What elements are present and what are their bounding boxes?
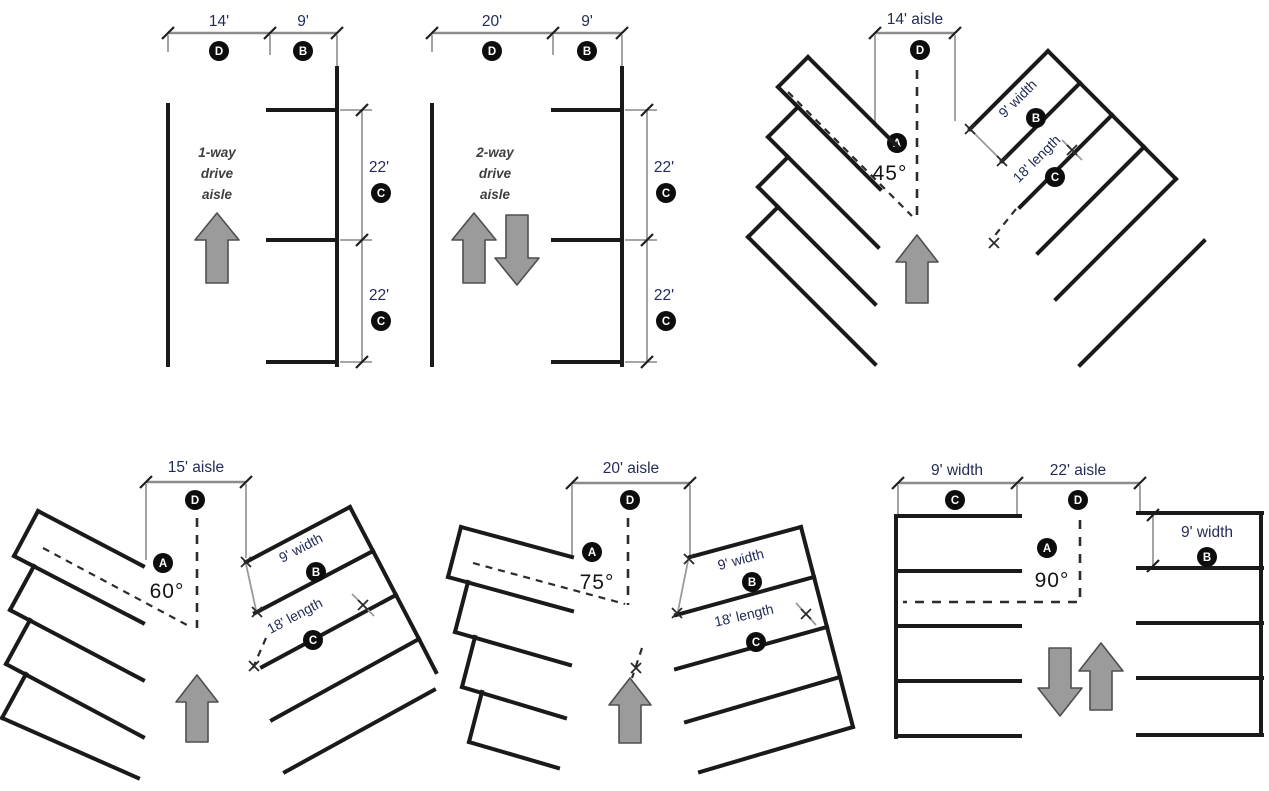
- badge-aisle: D: [910, 40, 930, 60]
- svg-text:B: B: [299, 46, 307, 58]
- svg-text:C: C: [309, 635, 317, 647]
- badge-stall-length-bottom: C: [656, 311, 676, 331]
- badge-stall-length-top: C: [656, 183, 676, 203]
- svg-text:aisle: aisle: [202, 187, 233, 202]
- badge-stall-width: B: [577, 41, 597, 61]
- svg-text:2-way: 2-way: [475, 145, 515, 160]
- badge-aisle: D: [185, 490, 205, 510]
- svg-text:D: D: [1074, 495, 1082, 507]
- svg-text:B: B: [312, 567, 320, 579]
- right-stall-rows: [246, 507, 436, 772]
- svg-text:B: B: [1032, 113, 1040, 125]
- stall-width-dimension: 9': [581, 13, 593, 30]
- svg-text:D: D: [916, 45, 924, 57]
- left-stall-rows: [2, 511, 143, 778]
- svg-text:drive: drive: [201, 166, 234, 181]
- angle-value: 90°: [1035, 569, 1070, 592]
- svg-text:C: C: [951, 495, 959, 507]
- aisle-text: 1-way drive aisle: [198, 145, 237, 202]
- aisle-width-dimension: 14': [209, 13, 229, 30]
- badge-stall-width: B: [1026, 108, 1046, 128]
- badge-aisle-width: D: [482, 41, 502, 61]
- left-stall-block: [896, 516, 1020, 737]
- panel-angle-90: 9' width 22' aisle C D 9' width B A 90°: [860, 440, 1269, 791]
- svg-text:D: D: [488, 46, 496, 58]
- badge-stall-length-bottom: C: [371, 311, 391, 331]
- aisle-width-dimension: 20': [482, 13, 502, 30]
- svg-text:A: A: [1043, 543, 1051, 555]
- svg-text:C: C: [662, 316, 670, 328]
- up-arrow-icon: [452, 213, 496, 283]
- stall-length-dimension-bottom: 22': [654, 287, 674, 304]
- svg-text:D: D: [191, 495, 199, 507]
- up-arrow-icon: [896, 235, 938, 303]
- stall-length-dimension-top: 22': [654, 159, 674, 176]
- badge-aisle-width: D: [209, 41, 229, 61]
- stall-length-dimension: 18' length: [713, 601, 775, 630]
- svg-text:C: C: [662, 188, 670, 200]
- panel-angle-75: 20' aisle D A 75°: [420, 440, 860, 791]
- aisle-dimension: 14' aisle: [887, 11, 943, 28]
- left-stall-width-dimension: 9' width: [931, 462, 983, 479]
- dimension-lines: [162, 27, 372, 368]
- stall-length-dimension-bottom: 22': [369, 287, 389, 304]
- aisle-text: 2-way drive aisle: [475, 145, 515, 202]
- svg-text:C: C: [377, 316, 385, 328]
- badge-aisle: D: [620, 490, 640, 510]
- svg-text:C: C: [377, 188, 385, 200]
- svg-text:B: B: [583, 46, 591, 58]
- svg-text:C: C: [1051, 172, 1059, 184]
- badge-right-stall-width: B: [1197, 547, 1217, 567]
- badge-stall-length-top: C: [371, 183, 391, 203]
- badge-angle: A: [153, 553, 173, 573]
- svg-text:1-way: 1-way: [198, 145, 237, 160]
- svg-text:A: A: [588, 547, 596, 559]
- badge-angle: A: [1037, 538, 1057, 558]
- badge-stall-width: B: [306, 562, 326, 582]
- down-arrow-icon: [495, 215, 539, 285]
- badge-left-stall-width: C: [945, 490, 965, 510]
- up-arrow-icon: [176, 675, 218, 742]
- badge-stall-length: C: [1045, 167, 1065, 187]
- right-stall-rows: [676, 527, 853, 772]
- badge-stall-length: C: [303, 630, 323, 650]
- left-stall-rows: [448, 527, 572, 768]
- stall-dimension-marks: [965, 124, 1082, 248]
- badge-stall-width: B: [742, 572, 762, 592]
- stall-length-dimension-top: 22': [369, 159, 389, 176]
- stall-width-dimension: 9': [297, 13, 309, 30]
- right-stall-rows: [970, 51, 1204, 365]
- angle-value: 45°: [873, 162, 908, 185]
- badge-stall-length: C: [746, 632, 766, 652]
- down-arrow-icon: [1038, 648, 1082, 716]
- right-stall-block: [1138, 513, 1262, 735]
- panel-two-way-parallel: 20' 9' D B 22' C 22' C 2-way drive aisle: [420, 0, 700, 400]
- svg-text:drive: drive: [479, 166, 512, 181]
- panel-one-way-parallel: 14' 9' D B 22' C 22' C 1-way drive aisle: [140, 0, 410, 400]
- svg-text:A: A: [159, 558, 167, 570]
- aisle-dimension: 20' aisle: [603, 460, 659, 477]
- svg-text:B: B: [748, 577, 756, 589]
- parking-diagrams-figure: 14' 9' D B 22' C 22' C 1-way drive aisle: [0, 0, 1269, 791]
- badge-stall-width: B: [293, 41, 313, 61]
- badge-aisle: D: [1068, 490, 1088, 510]
- svg-text:aisle: aisle: [480, 187, 511, 202]
- svg-text:B: B: [1203, 552, 1211, 564]
- aisle-dimension: 15' aisle: [168, 459, 224, 476]
- panel-angle-45: 14' aisle D A 45°: [740, 0, 1269, 420]
- angle-value: 75°: [580, 571, 615, 594]
- up-arrow-icon: [609, 678, 651, 743]
- svg-text:C: C: [752, 637, 760, 649]
- right-stall-width-dimension: 9' width: [1181, 524, 1233, 541]
- up-arrow-icon: [195, 213, 239, 283]
- svg-text:D: D: [626, 495, 634, 507]
- angle-value: 60°: [150, 580, 185, 603]
- up-arrow-icon: [1079, 643, 1123, 710]
- dimension-lines: [892, 477, 1159, 572]
- aisle-dimension: 22' aisle: [1050, 462, 1106, 479]
- svg-text:D: D: [215, 46, 223, 58]
- dimension-lines: [566, 477, 696, 555]
- parking-outline: [168, 68, 337, 365]
- badge-angle: A: [887, 133, 907, 153]
- panel-angle-60: 15' aisle D A 60°: [0, 440, 440, 791]
- badge-angle: A: [582, 542, 602, 562]
